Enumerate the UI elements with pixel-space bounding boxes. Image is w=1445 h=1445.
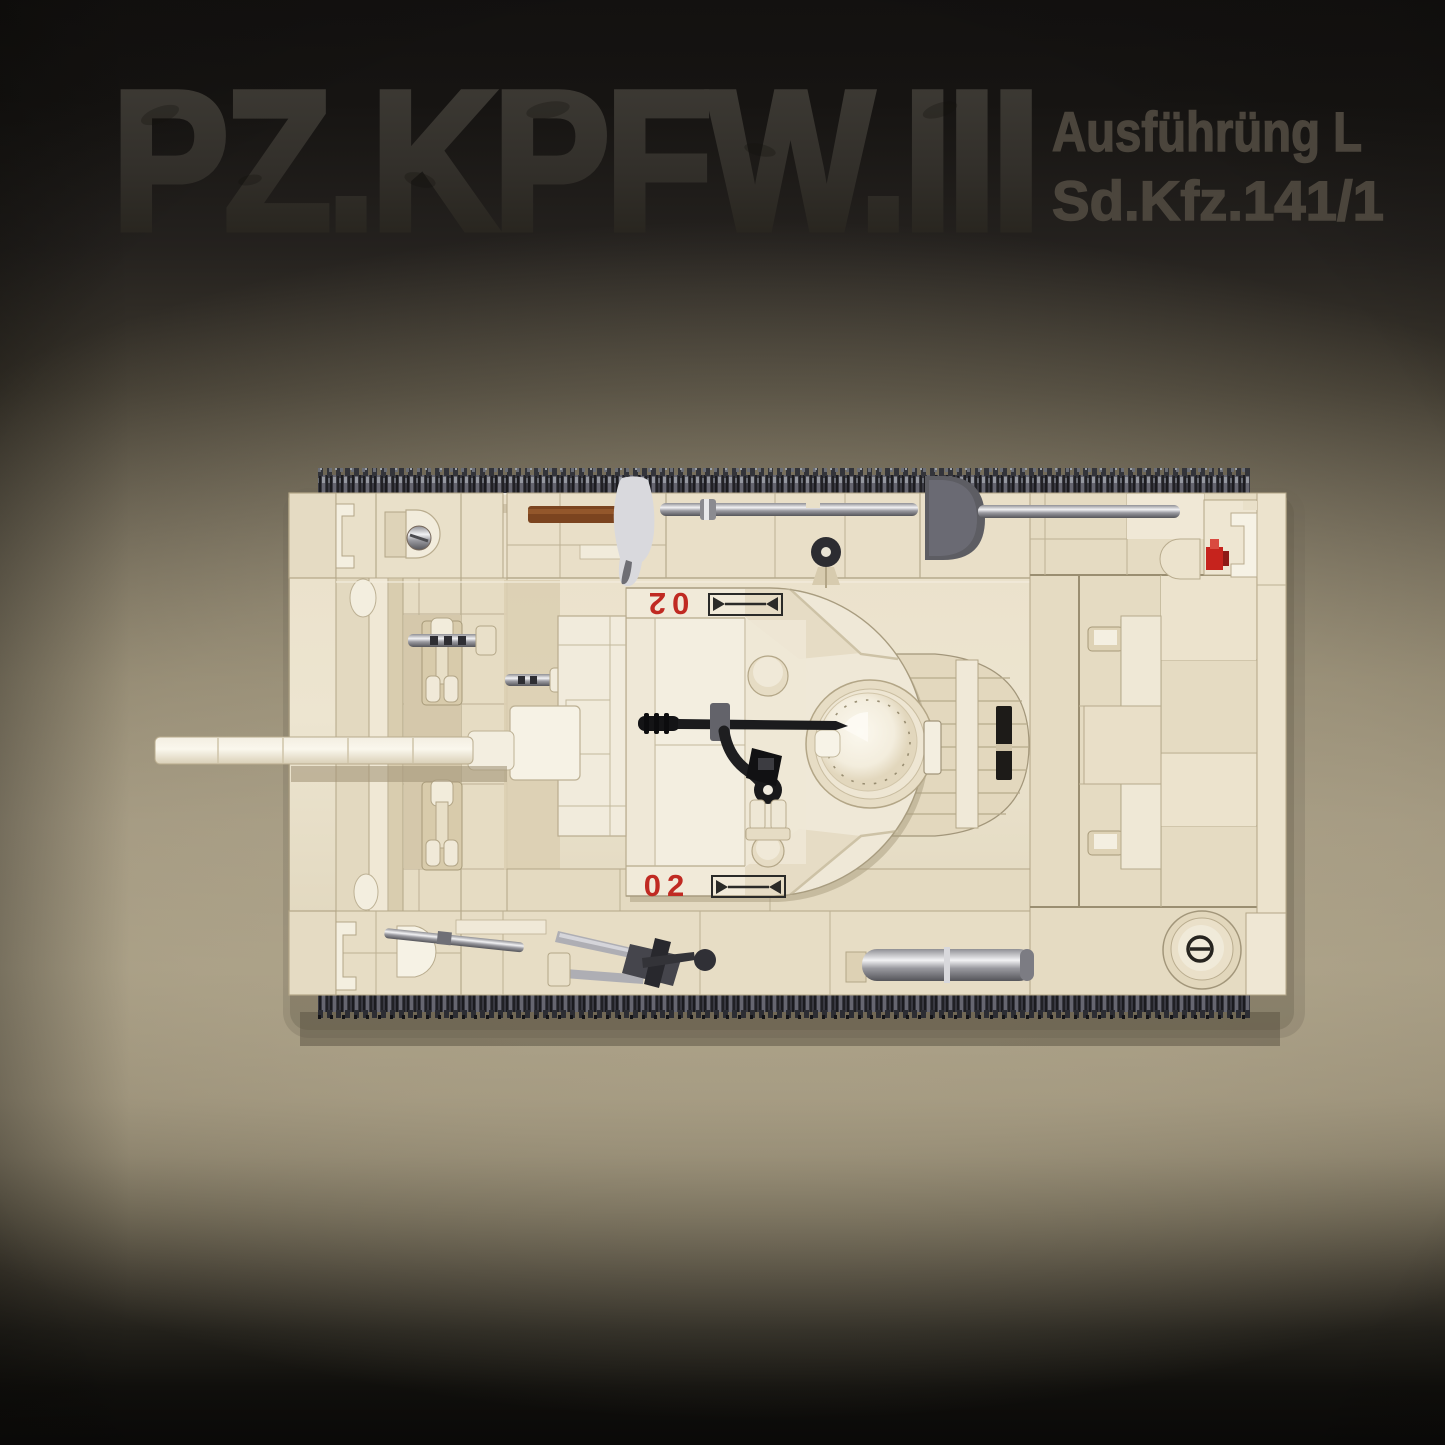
svg-text:02: 02 [643,586,689,621]
svg-text:Ausführüng L: Ausführüng L [1052,100,1362,163]
svg-text:PZ.KPFW.III: PZ.KPFW.III [112,50,1036,271]
svg-text:Sd.Kfz.141/1: Sd.Kfz.141/1 [1052,169,1384,232]
svg-text:02: 02 [644,868,690,903]
